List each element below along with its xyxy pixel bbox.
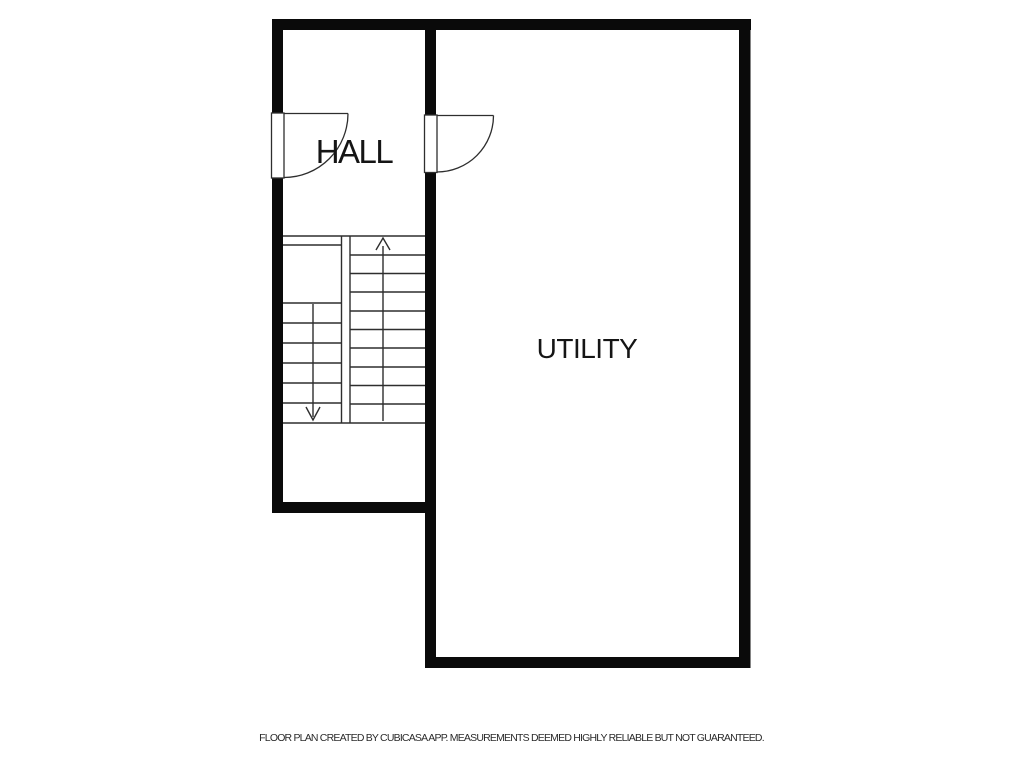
wall-utility-bottom xyxy=(425,657,751,668)
footer-disclaimer: FLOOR PLAN CREATED BY CUBICASA APP. MEAS… xyxy=(0,732,1023,744)
room-label-utility: UTILITY xyxy=(537,333,639,364)
staircase xyxy=(283,236,425,423)
down-flight-treads xyxy=(283,303,342,403)
wall-top xyxy=(272,19,751,30)
door-jamb xyxy=(272,113,285,178)
walls xyxy=(272,19,751,668)
wall-left xyxy=(272,19,283,513)
door-jamb xyxy=(425,115,438,173)
utility-door xyxy=(425,115,494,173)
up-flight-treads xyxy=(350,255,425,404)
wall-right xyxy=(739,19,751,668)
room-label-hall: HALL xyxy=(316,133,394,170)
wall-hall-bottom xyxy=(272,502,436,513)
floor-plan-drawing: HALL UTILITY xyxy=(0,0,1023,767)
door-swing-arc xyxy=(437,116,494,173)
floor-plan-page: HALL UTILITY FLOOR PLAN CREATED BY CUBIC… xyxy=(0,0,1023,767)
